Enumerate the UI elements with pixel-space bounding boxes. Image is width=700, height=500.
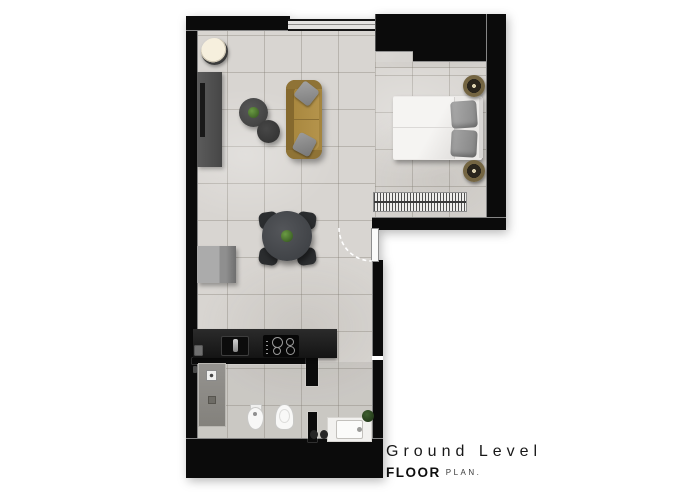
coffee-table-small <box>257 120 280 143</box>
kitchen-fixture <box>194 345 203 356</box>
bed-duvet <box>393 97 455 159</box>
plan-title-plan: PLAN. <box>446 468 482 477</box>
nightstand <box>463 160 485 182</box>
plant-icon <box>248 107 259 118</box>
burner-icon <box>273 347 281 355</box>
toilet-seat <box>279 409 290 423</box>
bed-pillow <box>450 129 477 157</box>
plan-title: Ground Level FLOORPLAN. <box>386 443 542 482</box>
sideboard-cabinet <box>197 246 236 283</box>
burner-icon <box>286 338 294 346</box>
shower-drain <box>208 396 216 404</box>
bidet-tap <box>253 412 257 416</box>
planter-icon <box>201 38 228 65</box>
door-swing-arc <box>336 226 380 266</box>
plan-title-line2: FLOORPLAN. <box>386 464 542 482</box>
plant-icon <box>281 230 293 242</box>
cooktop-knobs <box>266 338 268 354</box>
nightstand <box>463 75 485 97</box>
bed-headboard <box>479 98 483 158</box>
faucet-icon <box>233 339 238 352</box>
wall-bedroom-bottom <box>372 217 506 230</box>
shower-hook <box>193 366 197 373</box>
wall-top <box>186 16 290 31</box>
slipper-icon <box>310 430 318 439</box>
wall-bedroom-top-step <box>375 14 415 52</box>
apartment-floor-plan <box>0 0 700 500</box>
sofa-cushion-seam <box>294 119 319 120</box>
plan-title-line1: Ground Level <box>386 443 542 461</box>
bed-pillow <box>450 100 478 129</box>
bed-duvet-seam <box>393 127 454 128</box>
floor-plan-canvas: Ground Level FLOORPLAN. <box>0 0 700 500</box>
vanity-tap <box>357 427 362 432</box>
radiator-midline <box>374 201 466 203</box>
burner-icon <box>286 346 295 355</box>
wall-joint-jamb <box>372 356 383 360</box>
plant-icon <box>362 410 374 422</box>
shower-control <box>206 370 217 381</box>
tv-icon <box>200 83 205 137</box>
wall-bedroom-right <box>486 14 506 230</box>
wall-stub-bathroom-entry <box>306 358 318 386</box>
window <box>288 19 377 31</box>
slipper-icon <box>320 430 328 439</box>
wall-bottom <box>186 438 383 478</box>
plan-title-floor: FLOOR <box>386 465 441 480</box>
